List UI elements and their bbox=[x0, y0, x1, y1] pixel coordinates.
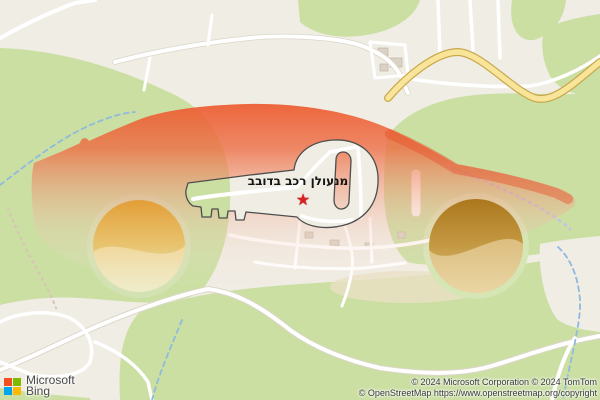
logo-square-yellow bbox=[13, 387, 21, 395]
logo-square-red bbox=[4, 378, 12, 386]
map-attribution: © 2024 Microsoft Corporation © 2024 TomT… bbox=[359, 377, 597, 399]
star-icon: ★ bbox=[293, 191, 313, 211]
logo-text: Microsoft Bing bbox=[26, 375, 75, 397]
microsoft-logo-icon bbox=[4, 378, 21, 395]
logo-square-green bbox=[13, 378, 21, 386]
logo-product: Bing bbox=[26, 386, 75, 397]
attribution-line2[interactable]: © OpenStreetMap https://www.openstreetma… bbox=[359, 388, 597, 399]
logo-square-blue bbox=[4, 387, 12, 395]
attribution-line1: © 2024 Microsoft Corporation © 2024 TomT… bbox=[359, 377, 597, 388]
bing-logo[interactable]: Microsoft Bing bbox=[4, 375, 75, 397]
map-viewport[interactable]: מנעולן רכב בדובב ★ Microsoft Bing © 2024… bbox=[0, 0, 600, 400]
